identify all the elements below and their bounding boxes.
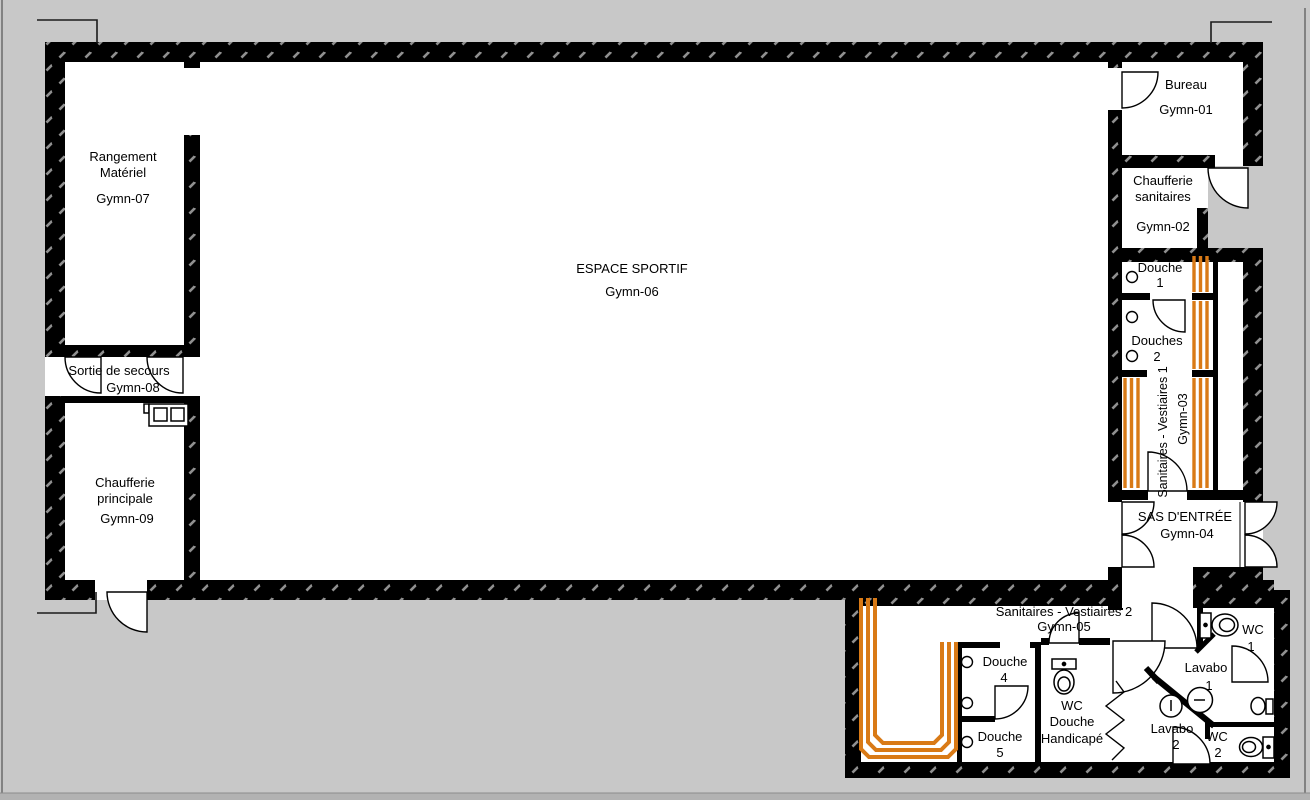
fixture-num-douches2: 2: [1153, 349, 1160, 364]
fixture-num-wc2: 2: [1214, 745, 1221, 760]
fixture-num-lavabo1: 1: [1205, 678, 1212, 693]
room-espace-sportif: [65, 62, 1243, 580]
floor-plan-viewport: Rangement Matériel Gymn-07 ESPACE SPORTI…: [0, 0, 1310, 800]
floor-plan: Rangement Matériel Gymn-07 ESPACE SPORTI…: [0, 0, 1310, 800]
shower-icon: [1127, 351, 1138, 362]
equipment-panel-icon: [144, 404, 188, 426]
fixture-num-douche4: 4: [1000, 670, 1007, 685]
toilet-icon-wc2: [1240, 737, 1275, 758]
room-code-sortie-secours: Gymn-08: [106, 380, 159, 395]
fixture-label-wc1: WC: [1242, 622, 1264, 637]
room-code-vestiaires1: Gymn-03: [1176, 393, 1190, 444]
fixture-label-douche5: Douche: [978, 729, 1023, 744]
room-label-chaufferie-sanitaires: Chaufferie: [1133, 173, 1193, 188]
room-label-rangement: Rangement: [89, 149, 157, 164]
fixture-label-douches2: Douches: [1131, 333, 1183, 348]
toilet-icon-wc1: [1200, 613, 1238, 638]
fixture-num-douche1: 1: [1156, 275, 1163, 290]
room-code-bureau: Gymn-01: [1159, 102, 1212, 117]
room-label-bureau: Bureau: [1165, 77, 1207, 92]
fixture-label-wc-handicape-3: Handicapé: [1041, 731, 1103, 746]
room-label-rangement-2: Matériel: [100, 165, 146, 180]
shower-icon: [1127, 312, 1138, 323]
fixture-label-douche4: Douche: [983, 654, 1028, 669]
fixture-label-wc-handicape-2: Douche: [1050, 714, 1095, 729]
fixture-num-lavabo2: 2: [1172, 737, 1179, 752]
shower-icon: [962, 657, 973, 668]
toilet-icon-handicape: [1052, 659, 1076, 694]
room-code-rangement: Gymn-07: [96, 191, 149, 206]
room-label-vestiaires1: Sanitaires - Vestiaires 1: [1156, 366, 1170, 497]
fixture-num-wc1: 1: [1247, 639, 1254, 654]
room-code-chaufferie-sanitaires: Gymn-02: [1136, 219, 1189, 234]
fixture-label-lavabo2: Lavabo: [1151, 721, 1194, 736]
room-label-vestiaires2: Sanitaires - Vestiaires 2: [996, 604, 1133, 619]
bottom-edge-strip: [0, 793, 1310, 800]
fixture-label-douche1: Douche: [1138, 260, 1183, 275]
room-label-chaufferie-principale-2: principale: [97, 491, 153, 506]
room-label-chaufferie-sanitaires-2: sanitaires: [1135, 189, 1191, 204]
room-code-espace-sportif: Gymn-06: [605, 284, 658, 299]
room-label-espace-sportif: ESPACE SPORTIF: [576, 261, 688, 276]
room-label-sortie-secours: Sortie de secours: [68, 363, 170, 378]
room-code-vestiaires2: Gymn-05: [1037, 619, 1090, 634]
shower-icon: [1127, 272, 1138, 283]
urinal-icon: [1251, 698, 1273, 715]
fixture-label-wc2: WC: [1206, 729, 1228, 744]
shower-icon: [962, 698, 973, 709]
room-code-chaufferie-principale: Gymn-09: [100, 511, 153, 526]
fixture-num-douche5: 5: [996, 745, 1003, 760]
fixture-label-lavabo1: Lavabo: [1185, 660, 1228, 675]
fixture-label-wc-handicape-1: WC: [1061, 698, 1083, 713]
room-label-chaufferie-principale: Chaufferie: [95, 475, 155, 490]
room-label-sas: SAS D'ENTRÉE: [1138, 509, 1233, 524]
room-code-sas: Gymn-04: [1160, 526, 1213, 541]
shower-icon: [962, 737, 973, 748]
